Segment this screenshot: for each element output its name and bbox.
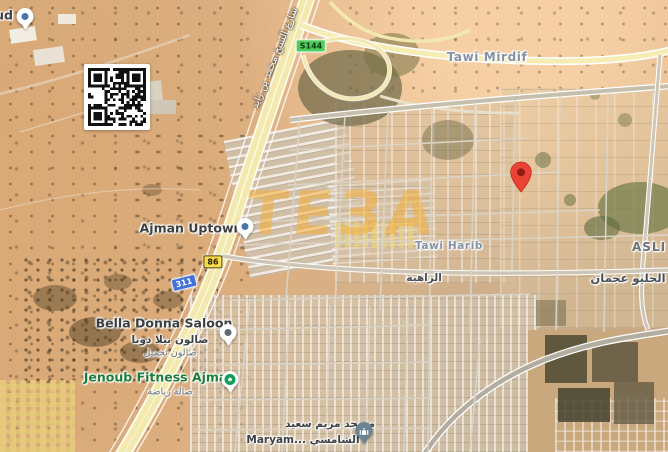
area-label-tawi-harib: Tawi Harib — [415, 240, 483, 252]
area-label-al-helio: الحليو عجمان — [590, 271, 665, 285]
route-shield-86: 86 — [203, 255, 222, 268]
blue-dot-icon — [22, 13, 29, 20]
blue-dot-icon — [242, 223, 249, 230]
destination-pin[interactable] — [510, 161, 533, 197]
poi-label-bella-donna[interactable]: Bella Donna Saloon — [96, 316, 233, 331]
qr-code — [84, 64, 150, 130]
poi-pin-ajman-uptown[interactable] — [237, 218, 254, 240]
qr-code-pattern — [88, 68, 146, 126]
poi-pin-jenoub-fitness[interactable] — [222, 371, 239, 393]
poi-pin-bella-donna[interactable] — [220, 324, 237, 346]
poi-label-maryam-mosque-2[interactable]: Maryam... الشامسي — [246, 434, 359, 446]
watermark-logo: TEЗA — [243, 179, 441, 249]
area-label-asli: ASLI C — [632, 240, 668, 254]
poi-label-ajman-uptown[interactable]: Ajman Uptown — [140, 221, 243, 236]
satellite-map[interactable]: TEЗA شارع الشيخ محمد بن زايد Tawi Mirdif… — [0, 0, 668, 452]
poi-label-jenoub-fitness[interactable]: Jenoub Fitness Ajman — [84, 370, 237, 385]
route-shield-s144: S144 — [296, 39, 326, 52]
poi-label-partial-ud[interactable]: ud — [0, 8, 13, 23]
poi-category-jenoub-ar: صالة رياضة — [147, 387, 192, 398]
poi-pin-partial-ud[interactable] — [17, 8, 34, 30]
area-label-al-zahia: الزاهية — [406, 272, 442, 284]
gray-dot-icon — [225, 329, 232, 336]
poi-category-bella-donna-ar: صالون تجميل — [143, 348, 196, 359]
poi-sublabel-bella-donna-ar: صالون بيلا دونا — [132, 334, 209, 346]
poi-pin-maryam-mosque[interactable] — [356, 422, 373, 444]
area-label-tawi-mirdif: Tawi Mirdif — [447, 50, 528, 64]
red-pin-icon — [510, 161, 533, 193]
green-dot-icon — [225, 374, 236, 385]
mosque-icon — [359, 425, 370, 436]
